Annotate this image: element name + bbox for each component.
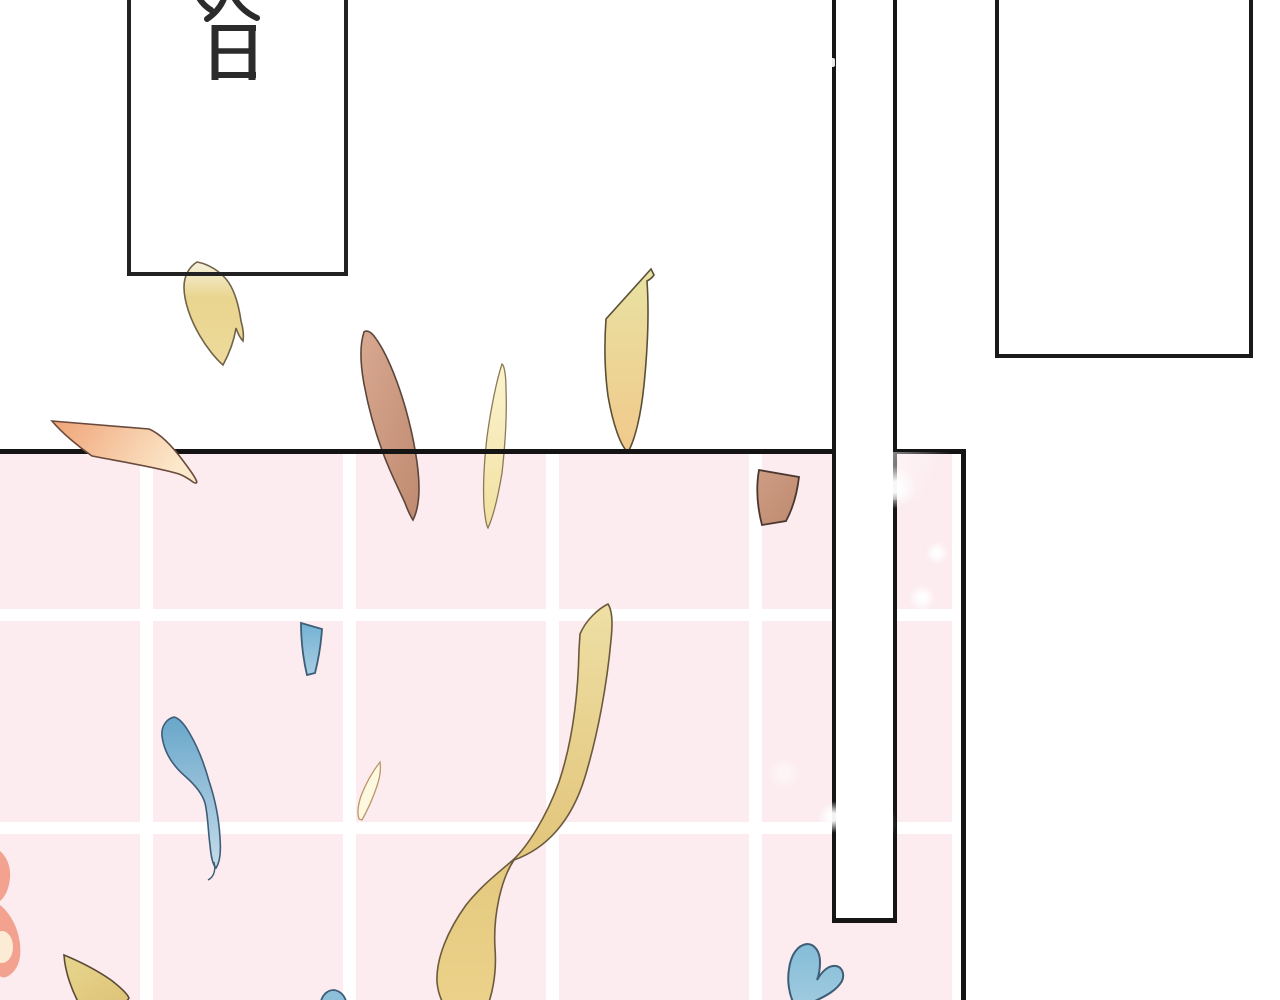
comic-page: 次日 [0,0,1280,1000]
confetti-art-layer [0,0,1280,1000]
caption-box-bottom-edge-line [182,272,246,276]
petal-yellow-top-left [184,262,243,365]
heart-salmon-partial [0,851,20,977]
wall-top-edge-line [356,449,662,454]
petal-blue-wing [162,717,220,880]
petal-brown-quad [757,470,799,525]
petal-yellow-bottom-left [64,955,129,1000]
heart-blue-bottom-right [788,944,843,1000]
petal-blue-trapezoid [301,623,322,675]
caption-glyphs [199,0,257,80]
petal-tan-curved [361,331,419,520]
ribbon-yellow-twisted [437,604,612,1000]
petal-yellow-kite [605,269,654,452]
petal-cream-small [358,762,380,820]
petal-cream-sliver [484,364,507,528]
petal-orange-parallelogram [52,421,197,483]
petal-blue-bottom-center [321,990,346,1000]
